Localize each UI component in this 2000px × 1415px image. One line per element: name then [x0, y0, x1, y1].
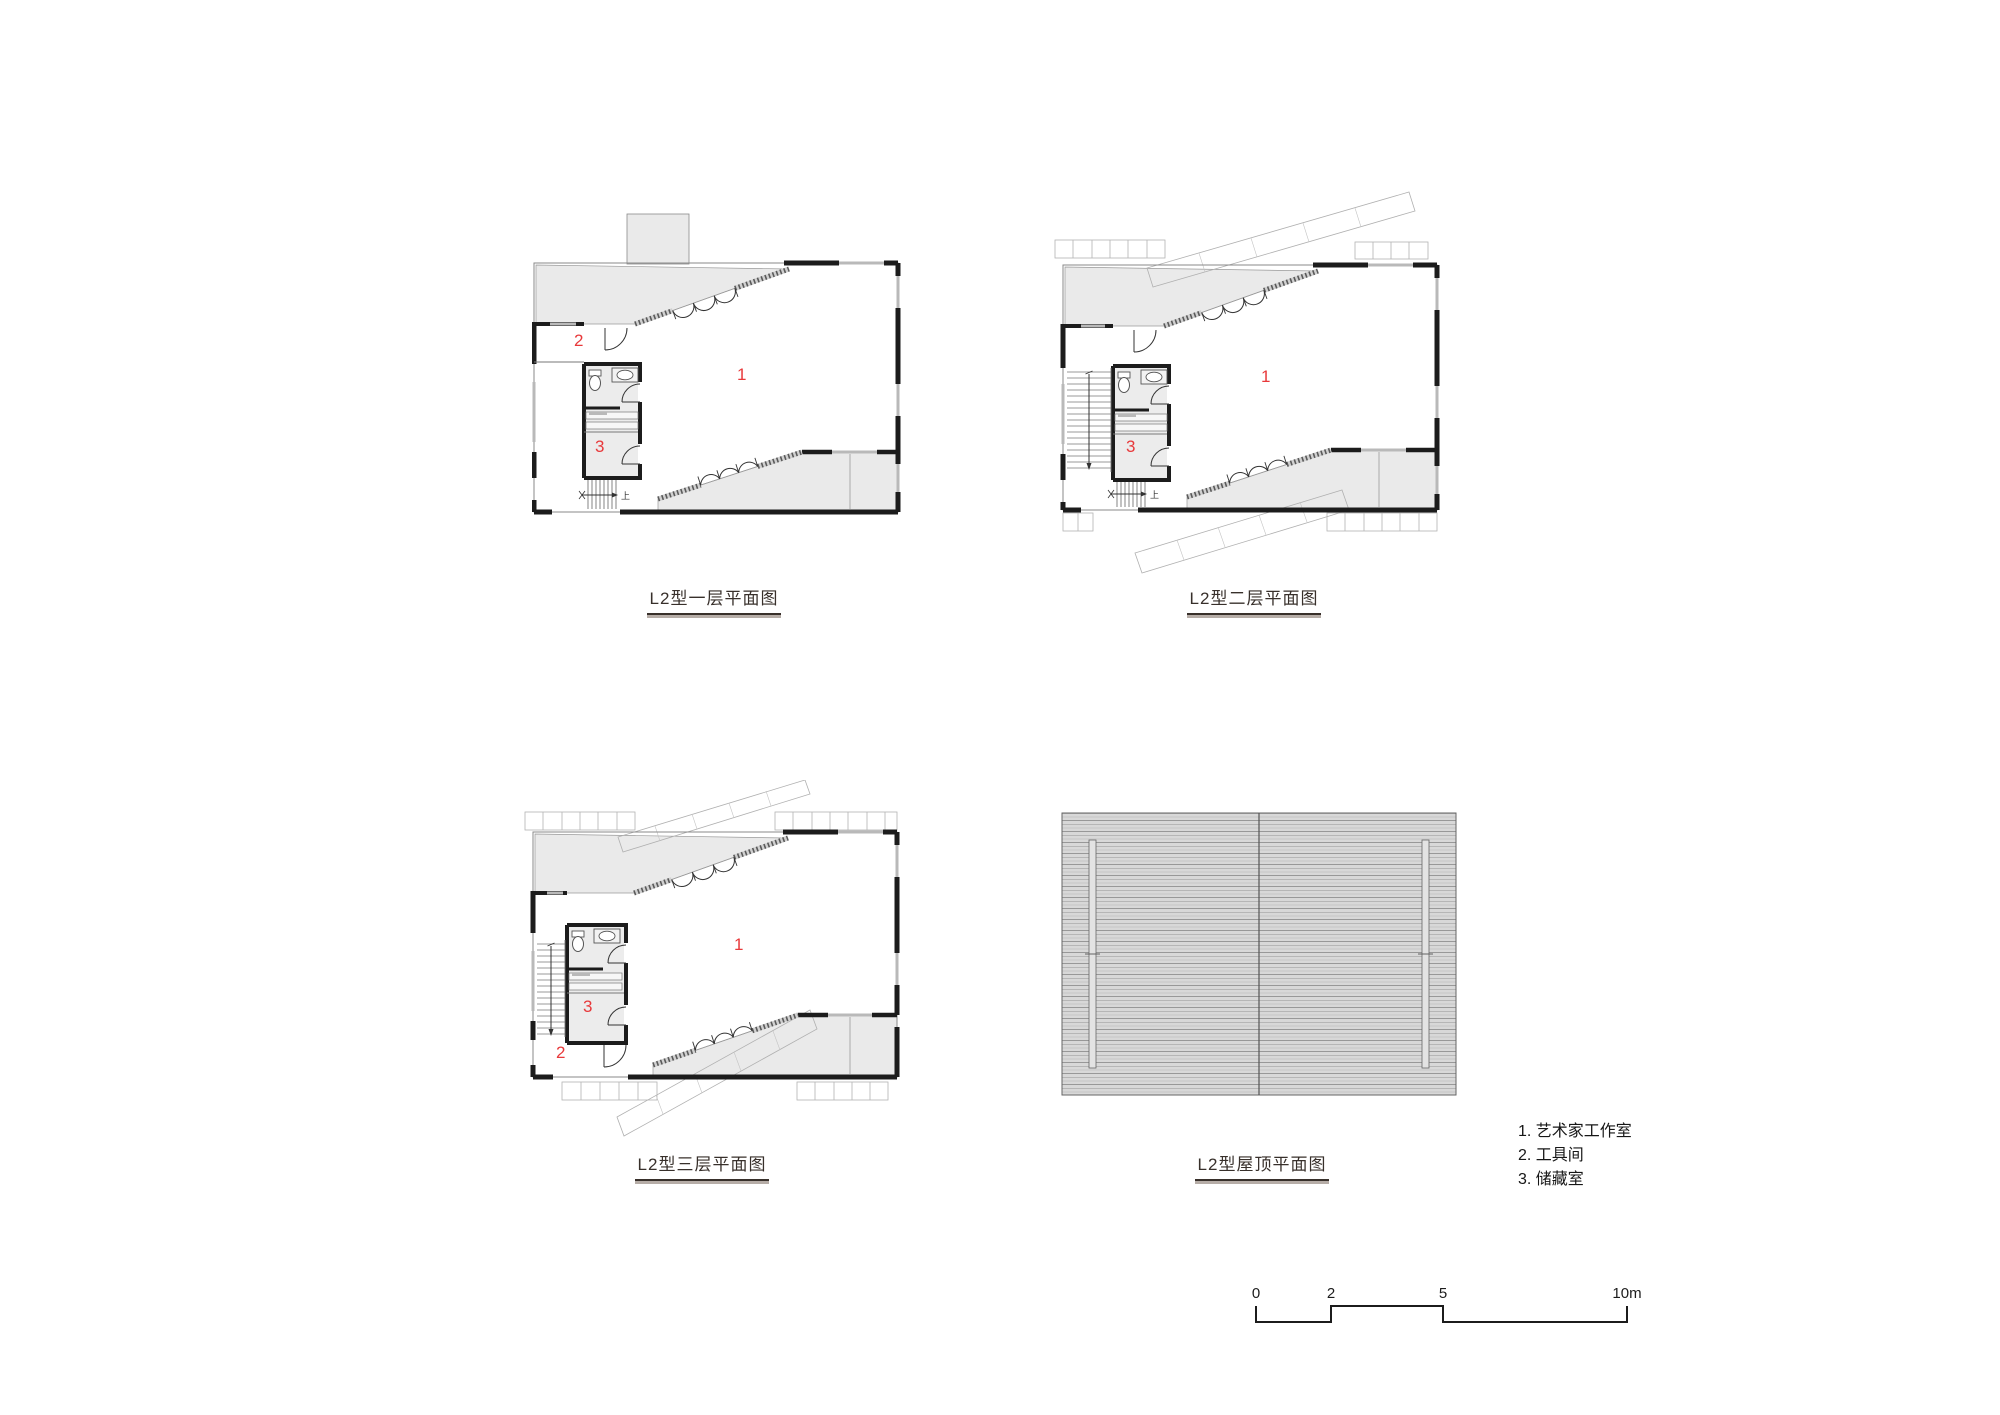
plan-floor1-drawing: 上 1 2 3 — [532, 212, 902, 516]
room-label-3: 3 — [1126, 437, 1135, 456]
floor2-core — [1113, 330, 1171, 480]
scale-label-2: 2 — [1327, 1285, 1335, 1302]
floor2-stairs-left — [1067, 368, 1111, 472]
room-label-2: 2 — [574, 331, 583, 350]
toilet — [590, 376, 601, 391]
stair-arrow — [612, 493, 618, 498]
floor3-stairs-left — [537, 940, 565, 1037]
plan-floor3-drawing: 1 3 2 — [520, 780, 920, 1145]
stair-arrow — [1141, 492, 1147, 497]
stair-up-label: 上 — [621, 491, 630, 501]
room2-door — [604, 1045, 626, 1067]
caption-roof-text: L2型屋顶平面图 — [1195, 1150, 1330, 1181]
plan-floor2-drawing: 上 1 3 — [1040, 172, 1452, 577]
caption-floor1-text: L2型一层平面图 — [647, 584, 782, 615]
shelf — [589, 412, 607, 415]
floor1-core — [534, 328, 642, 478]
room-legend: 1. 艺术家工作室 2. 工具间 3. 储藏室 — [1518, 1120, 1632, 1192]
room2-door — [605, 328, 627, 350]
sink — [1146, 372, 1162, 382]
stair-arrow — [549, 1029, 554, 1036]
room-label-3: 3 — [583, 997, 592, 1016]
scale-label-5: 5 — [1439, 1285, 1447, 1302]
scale-bar: 0 2 5 10m — [1243, 1284, 1643, 1336]
floor3-core — [567, 925, 628, 1067]
caption-floor3-text: L2型三层平面图 — [635, 1150, 770, 1181]
legend-item-2: 2. 工具间 — [1518, 1144, 1632, 1168]
toilet — [573, 937, 584, 952]
plan-roof-drawing — [1061, 812, 1457, 1096]
floor2-stairs-bottom: 上 — [1108, 482, 1159, 507]
hall-door — [1134, 330, 1156, 352]
stair-up-label: 上 — [1150, 490, 1159, 500]
scale-bar-line — [1256, 1306, 1627, 1322]
room-label-2: 2 — [556, 1043, 565, 1062]
room-label-1: 1 — [734, 935, 743, 954]
legend-item-3: 3. 储藏室 — [1518, 1168, 1632, 1192]
sink — [617, 370, 633, 380]
caption-floor3: L2型三层平面图 — [526, 1150, 878, 1181]
scale-label-0: 0 — [1252, 1285, 1260, 1302]
chimney — [627, 214, 689, 264]
sink — [599, 931, 615, 941]
legend-item-1: 1. 艺术家工作室 — [1518, 1120, 1632, 1144]
room-label-3: 3 — [595, 437, 604, 456]
drawing-sheet: 上 1 2 3 — [0, 0, 2000, 1415]
toilet — [1119, 378, 1130, 393]
stair-arrow — [1087, 463, 1092, 470]
caption-floor1: L2型一层平面图 — [538, 584, 890, 615]
room-label-1: 1 — [737, 365, 746, 384]
scale-label-10m: 10m — [1612, 1285, 1641, 1302]
caption-floor2: L2型二层平面图 — [1078, 584, 1430, 615]
room-label-1: 1 — [1261, 367, 1270, 386]
caption-roof: L2型屋顶平面图 — [1086, 1150, 1438, 1181]
floor1-stairs: 上 — [579, 480, 630, 509]
caption-floor2-text: L2型二层平面图 — [1187, 584, 1322, 615]
